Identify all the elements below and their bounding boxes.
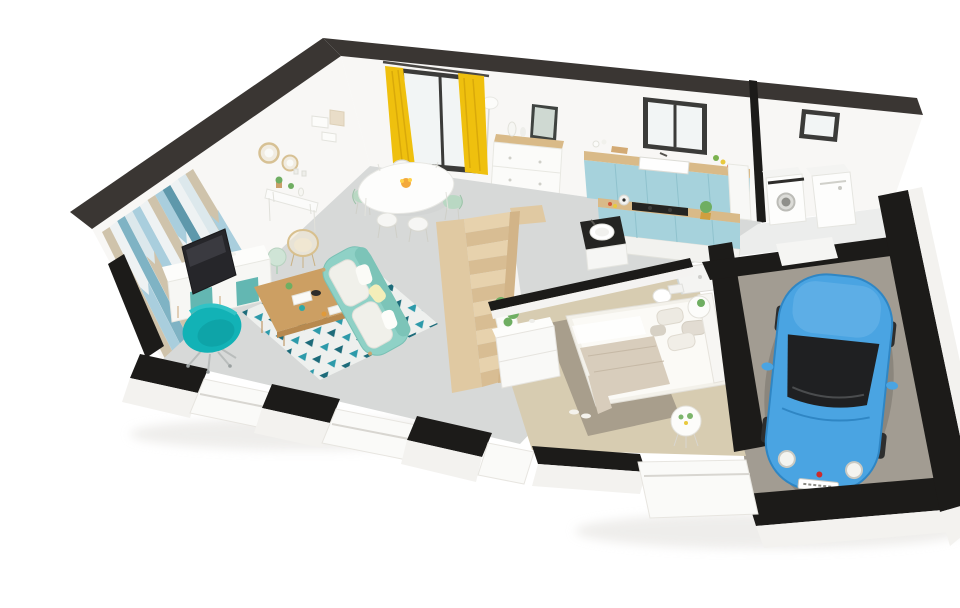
black-bowl	[311, 290, 321, 296]
vase	[299, 188, 304, 196]
table-decor-yellow	[684, 421, 688, 425]
dryer-button	[838, 186, 842, 190]
car-headlight	[845, 461, 863, 479]
yellow-jar	[721, 160, 726, 165]
light-switch	[294, 169, 298, 174]
drawer-knob	[509, 179, 512, 182]
tall-cabinet	[728, 164, 751, 220]
slipper	[581, 414, 591, 419]
toilet-tank	[668, 284, 684, 294]
mirror-glass	[265, 149, 274, 158]
sliding-glass-door	[383, 62, 498, 175]
washer-drum	[782, 198, 791, 207]
caster	[228, 364, 232, 368]
floor-plan-3d-render: 3D cutaway dollhouse floor plan of a sin…	[40, 16, 960, 592]
pot-lid-knob	[622, 198, 625, 201]
basin-bowl	[595, 228, 609, 237]
shelf-box	[312, 116, 328, 128]
car-headlight	[778, 450, 796, 468]
fruit	[408, 178, 412, 182]
shelf-box	[322, 132, 336, 142]
window-glass	[804, 114, 835, 137]
potted-plant	[276, 177, 283, 184]
sideboard-teal-door	[236, 277, 259, 306]
table-decor-green	[679, 415, 684, 420]
mirror-glass	[287, 160, 294, 167]
dresser-item	[529, 319, 535, 323]
burner	[668, 208, 672, 212]
side-table-plant	[697, 299, 705, 307]
kitchen-window	[643, 97, 707, 155]
round-side-table	[688, 296, 710, 318]
dryer	[812, 172, 856, 228]
canister	[593, 141, 599, 147]
teal-book	[299, 305, 305, 311]
rattan-chair-seat	[294, 238, 312, 252]
window-sill-opening	[478, 443, 534, 484]
shelf-box	[330, 110, 344, 126]
garage-door-opening	[638, 460, 758, 518]
caster	[186, 364, 190, 368]
burner	[648, 206, 652, 210]
shower-drain	[698, 275, 702, 279]
spice-jar	[613, 204, 617, 208]
potted-plant	[288, 183, 294, 189]
spice-jar	[608, 202, 612, 206]
fruit	[400, 179, 404, 183]
round-accent-table	[671, 406, 701, 448]
canister	[602, 140, 607, 145]
table-decor-green	[687, 413, 693, 419]
leaning-mirror-glass	[533, 107, 555, 138]
vase	[508, 122, 516, 136]
green-bottle	[713, 155, 719, 161]
drawer-knob	[509, 157, 512, 160]
wall-outlet	[302, 171, 306, 176]
vase	[520, 127, 526, 137]
orange-decor	[322, 312, 327, 317]
drawer-knob	[539, 183, 542, 186]
bedroom-dresser	[492, 317, 560, 388]
drawer-knob	[539, 161, 542, 164]
caster	[206, 370, 210, 374]
table-plant	[286, 283, 293, 290]
garage-window	[799, 109, 840, 142]
slipper	[569, 410, 579, 415]
cactus	[700, 201, 712, 213]
dresser-plant	[504, 318, 513, 327]
cactus-pot	[700, 212, 711, 220]
